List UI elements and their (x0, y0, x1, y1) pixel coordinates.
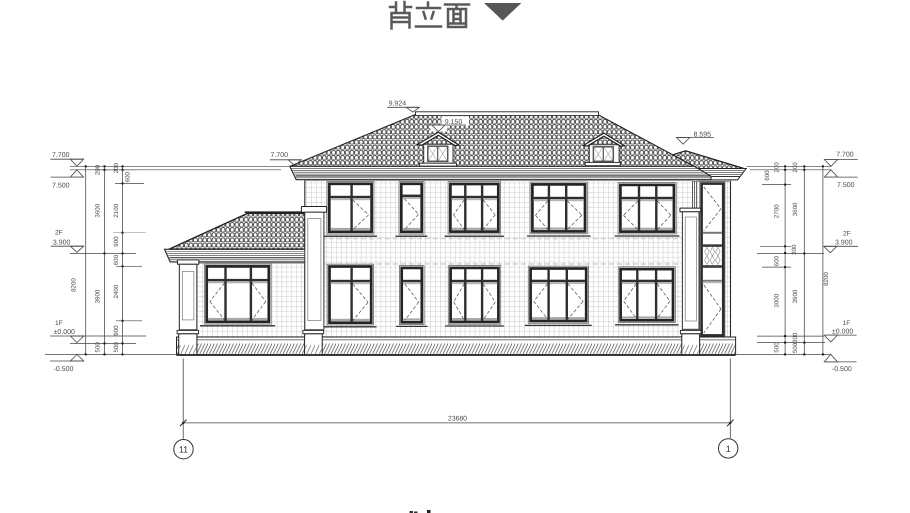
svg-text:11: 11 (179, 445, 188, 455)
svg-text:±0.000: ±0.000 (54, 329, 75, 336)
svg-text:2F: 2F (55, 229, 63, 236)
svg-text:200: 200 (95, 164, 102, 175)
svg-text:2100: 2100 (113, 203, 120, 217)
svg-text:1F: 1F (55, 320, 63, 327)
svg-text:7.700: 7.700 (836, 152, 854, 159)
svg-text:3600: 3600 (792, 202, 799, 216)
svg-text:200: 200 (774, 162, 781, 173)
svg-text:600: 600 (113, 254, 120, 265)
svg-text:±0.000: ±0.000 (832, 329, 853, 336)
svg-text:3000: 3000 (774, 293, 781, 307)
svg-text:300: 300 (792, 332, 799, 343)
svg-text:500: 500 (95, 342, 102, 353)
svg-text:900: 900 (113, 325, 120, 336)
svg-text:7.500: 7.500 (837, 182, 855, 189)
svg-text:9.924: 9.924 (389, 101, 407, 108)
svg-text:500: 500 (774, 342, 781, 353)
svg-text:500: 500 (113, 342, 120, 353)
svg-text:3900: 3900 (95, 289, 102, 303)
svg-text:1F: 1F (843, 320, 851, 327)
svg-text:2700: 2700 (774, 204, 781, 218)
svg-text:-0.500: -0.500 (832, 366, 852, 373)
svg-text:3.900: 3.900 (835, 240, 853, 247)
svg-text:-0.500: -0.500 (54, 366, 74, 373)
svg-text:3.900: 3.900 (53, 240, 71, 247)
svg-text:500: 500 (792, 342, 799, 353)
svg-text:1: 1 (726, 444, 731, 454)
svg-text:900: 900 (113, 236, 120, 247)
svg-text:600: 600 (774, 255, 781, 266)
svg-text:600: 600 (125, 171, 132, 182)
svg-text:23680: 23680 (448, 415, 467, 422)
svg-text:8200: 8200 (71, 278, 78, 292)
svg-text:7.700: 7.700 (271, 152, 289, 159)
svg-text:7.700: 7.700 (52, 152, 70, 159)
svg-text:7.500: 7.500 (52, 183, 70, 190)
svg-text:8200: 8200 (823, 272, 830, 286)
svg-text:3600: 3600 (95, 203, 102, 217)
svg-text:3900: 3900 (792, 289, 799, 303)
svg-text:2400: 2400 (113, 284, 120, 298)
svg-text:600: 600 (764, 170, 771, 181)
svg-text:2F: 2F (843, 230, 851, 237)
svg-text:200: 200 (792, 162, 799, 173)
svg-text:200: 200 (113, 162, 120, 173)
svg-text:300: 300 (791, 244, 798, 255)
